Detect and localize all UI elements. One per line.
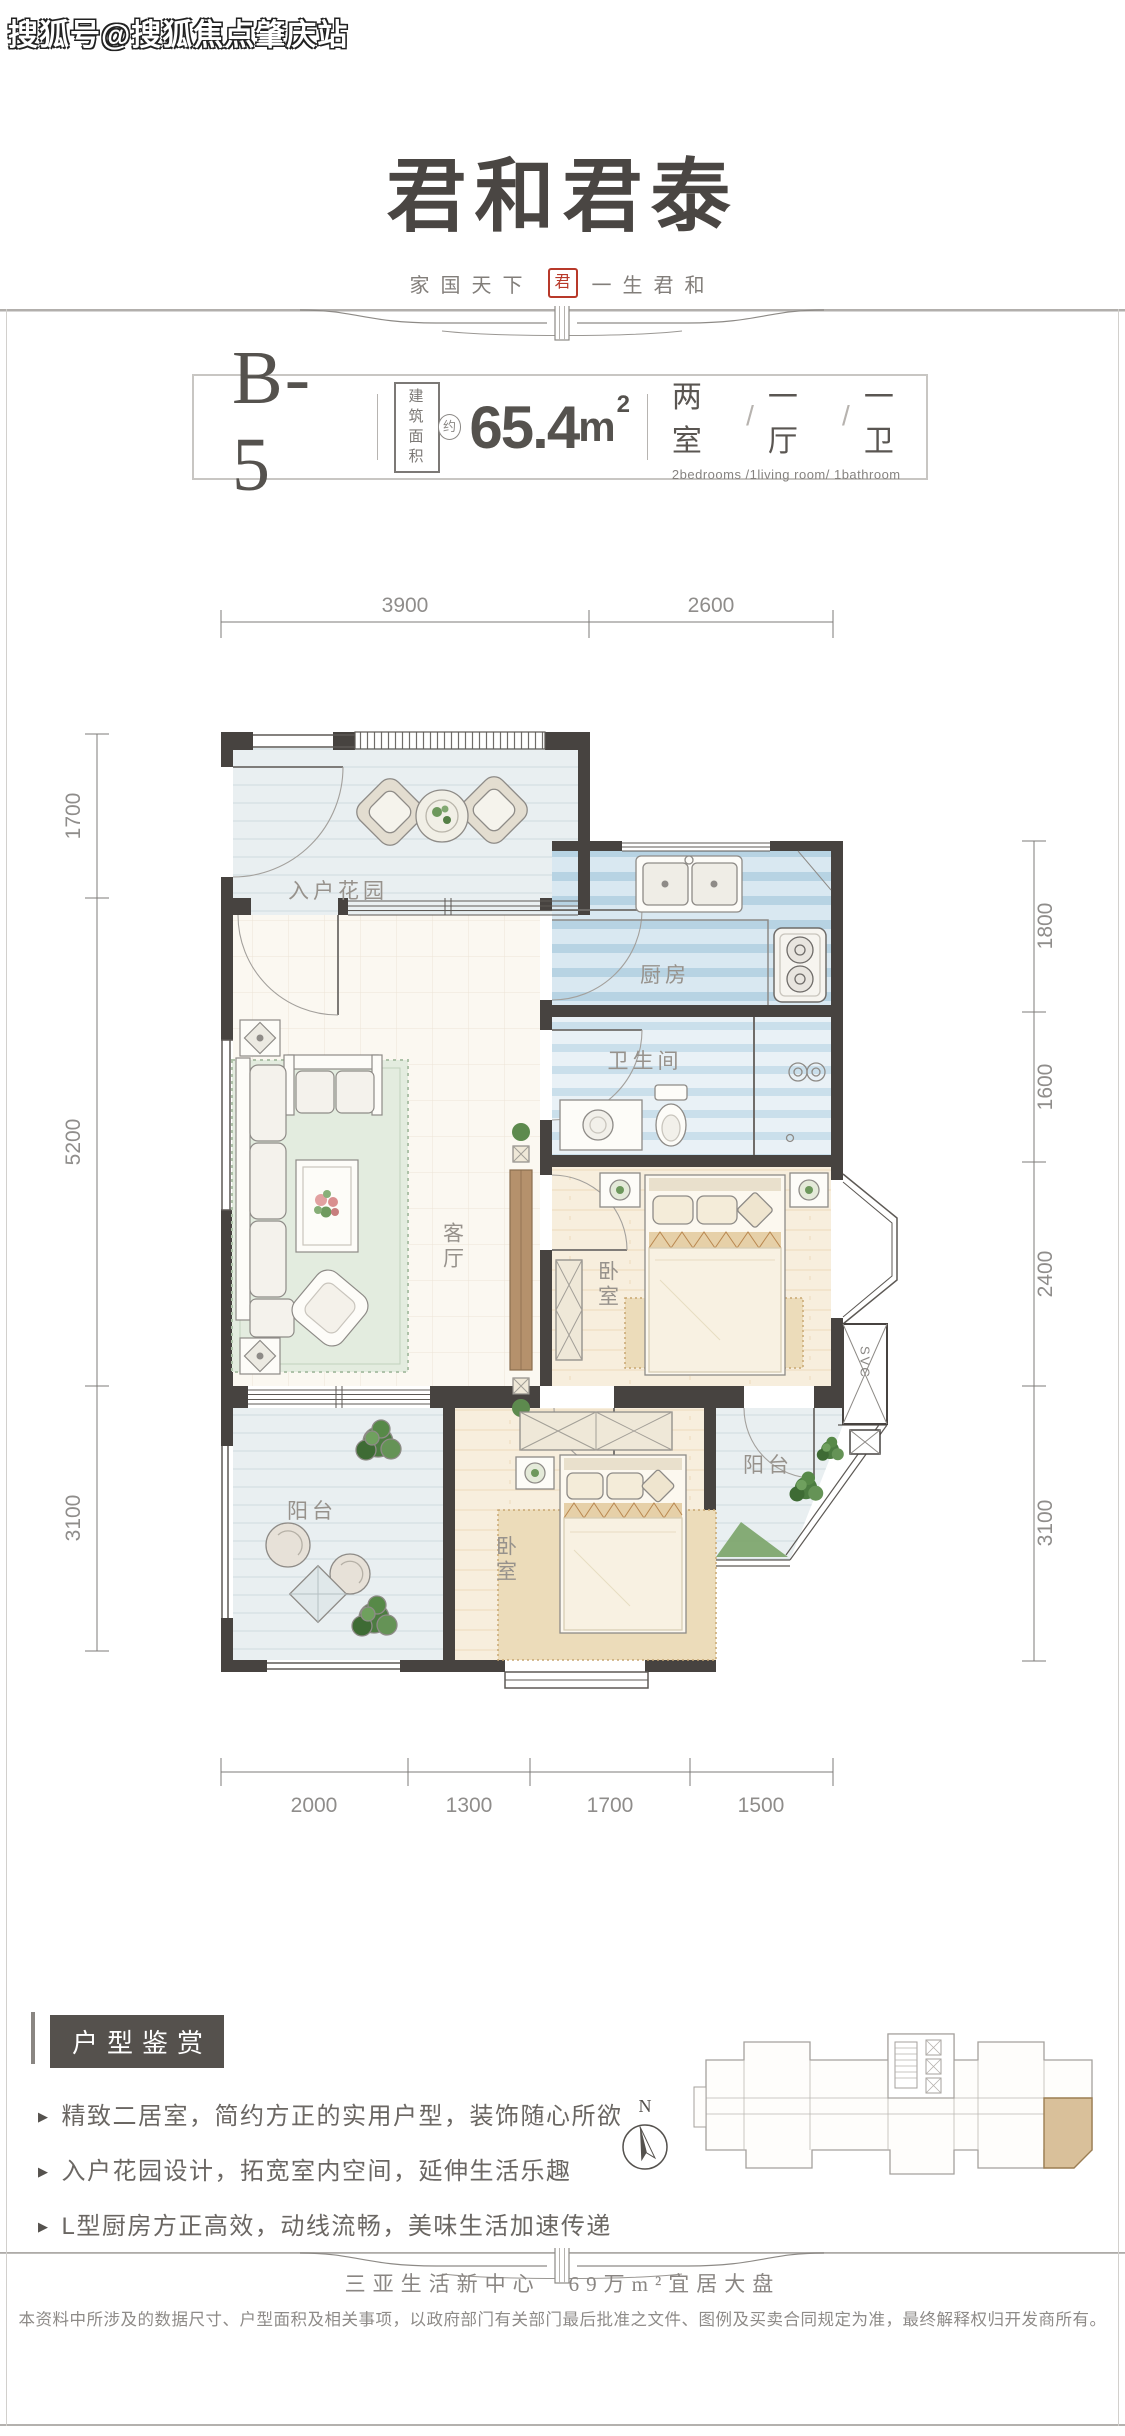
- dim-left-3: 3100: [62, 1495, 85, 1542]
- unit-layout: 两室 / 一厅 / 一卫 2bedrooms /1living room/ 1b…: [648, 372, 926, 482]
- watermark: 搜狐号@搜狐焦点肇庆站: [8, 10, 348, 54]
- dim-right-1: 1800: [1034, 903, 1057, 950]
- area-label: 建筑 面积: [394, 382, 439, 473]
- dim-right-2: 1600: [1034, 1064, 1057, 1111]
- dim-top-2: 2600: [688, 594, 735, 617]
- bottom-border: [0, 2424, 1125, 2426]
- label-bedroom-master: 卧室: [596, 1260, 619, 1310]
- brand-block: 君和君泰 家国天下 君 一生君和: [0, 132, 1125, 298]
- building-key-plan: [692, 2002, 1107, 2212]
- dim-bottom-4: 1500: [738, 1794, 785, 1817]
- feature-text: L型厨房方正高效，动线流畅，美味生活加速传递: [62, 2212, 612, 2242]
- dim-bottom-3: 1700: [587, 1794, 634, 1817]
- dim-right-4: 3100: [1034, 1500, 1057, 1547]
- brand-seal-icon: 君: [548, 268, 578, 298]
- floor-plan: 入户花园 厨房 卫生间 客厅 卧室 卧室 阳台 阳台 SVC 3900 2600…: [0, 560, 1125, 1860]
- dim-bottom-2: 1300: [446, 1794, 493, 1817]
- compass-icon: [616, 2118, 674, 2176]
- compass-north-label: N: [616, 2096, 674, 2117]
- bullet-triangle-icon: ▶: [38, 2109, 50, 2125]
- dim-right-3: 2400: [1034, 1251, 1057, 1298]
- feature-text: 精致二居室，简约方正的实用户型，装饰随心所欲: [62, 2102, 623, 2132]
- dim-bottom-1: 2000: [291, 1794, 338, 1817]
- label-bedroom-second: 卧室: [494, 1535, 517, 1585]
- area-label-line2: 面积: [401, 427, 432, 468]
- svc-shaft: [843, 1324, 887, 1454]
- highlighted-unit: [1044, 2098, 1092, 2168]
- area-superscript: 2: [617, 391, 630, 419]
- layout-bath: 一卫: [864, 372, 926, 460]
- area-value: 65.4: [469, 393, 578, 462]
- features-heading: 户型鉴赏: [50, 2015, 224, 2068]
- area-unit: m: [578, 403, 615, 451]
- features-list: ▶ 精致二居室，简约方正的实用户型，装饰随心所欲 ▶ 入户花园设计，拓宽室内空间…: [38, 2102, 628, 2267]
- label-living: 客厅: [441, 1222, 465, 1272]
- layout-english: 2bedrooms /1living room/ 1bathroom: [672, 467, 926, 482]
- label-balcony-main: 阳台: [287, 1500, 337, 1523]
- feature-item: ▶ 入户花园设计，拓宽室内空间，延伸生活乐趣: [38, 2157, 628, 2187]
- top-divider: [0, 306, 1125, 354]
- unit-code: B-5: [194, 335, 377, 519]
- dim-left-1: 1700: [62, 793, 85, 840]
- label-balcony-side: 阳台: [743, 1454, 793, 1477]
- layout-rooms: 两室: [672, 372, 734, 460]
- label-kitchen: 厨房: [640, 964, 690, 987]
- label-bathroom: 卫生间: [608, 1050, 683, 1073]
- unit-area: 建筑 面积 约 65.4 m 2: [378, 382, 646, 473]
- brand-tagline: 家国天下 君 一生君和: [0, 268, 1125, 298]
- label-svc: SVC: [858, 1346, 873, 1379]
- feature-text: 入户花园设计，拓宽室内空间，延伸生活乐趣: [62, 2157, 572, 2187]
- left-border: [6, 309, 7, 2426]
- feature-item: ▶ 精致二居室，简约方正的实用户型，装饰随心所欲: [38, 2102, 628, 2132]
- project-slogan: 三亚生活新中心 69万m²宜居大盘: [0, 2268, 1125, 2298]
- bullet-triangle-icon: ▶: [38, 2219, 50, 2235]
- layout-slash: /: [746, 400, 756, 432]
- right-border: [1118, 309, 1119, 2426]
- compass: N: [616, 2096, 674, 2181]
- label-entry-garden: 入户花园: [288, 880, 388, 903]
- dim-top-1: 3900: [382, 594, 429, 617]
- tagline-right: 一生君和: [592, 269, 716, 298]
- dim-left-2: 5200: [62, 1119, 85, 1166]
- bullet-triangle-icon: ▶: [38, 2164, 50, 2180]
- layout-slash: /: [842, 400, 852, 432]
- area-approx-badge: 约: [438, 414, 462, 440]
- features-accent-bar: [31, 2012, 35, 2064]
- unit-spec-box: B-5 建筑 面积 约 65.4 m 2 两室 / 一厅 / 一卫 2bedro…: [192, 374, 928, 480]
- legal-disclaimer: 本资料中所涉及的数据尺寸、户型面积及相关事项，以政府部门有关部门最后批准之文件、…: [10, 2306, 1115, 2330]
- tagline-left: 家国天下: [410, 269, 534, 298]
- area-label-line1: 建筑: [401, 387, 432, 428]
- brand-logo: 君和君泰: [0, 132, 1125, 248]
- layout-living: 一厅: [768, 372, 830, 460]
- feature-item: ▶ L型厨房方正高效，动线流畅，美味生活加速传递: [38, 2212, 628, 2242]
